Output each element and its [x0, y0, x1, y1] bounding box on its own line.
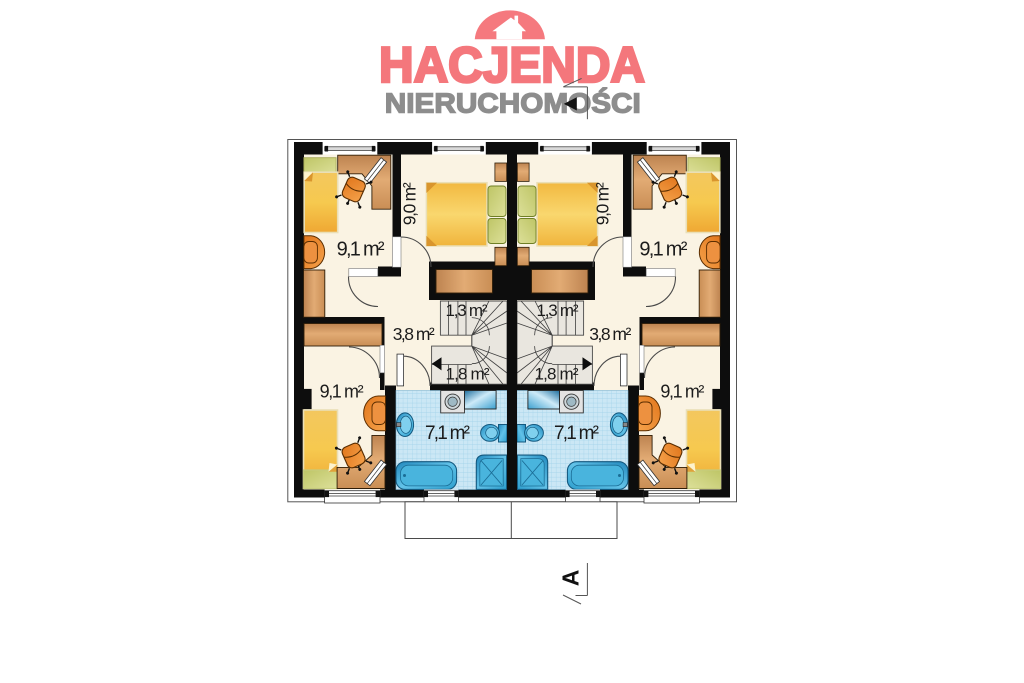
svg-text:3,8 m²: 3,8 m²: [393, 324, 435, 344]
svg-text:1,3 m²: 1,3 m²: [446, 301, 488, 320]
svg-text:9,1 m²: 9,1 m²: [337, 239, 385, 261]
svg-text:9,1 m²: 9,1 m²: [639, 239, 687, 261]
svg-text:3,8 m²: 3,8 m²: [589, 324, 631, 344]
svg-text:9,1 m²: 9,1 m²: [320, 382, 364, 402]
svg-text:A: A: [557, 570, 583, 587]
svg-text:1,8 m²: 1,8 m²: [535, 365, 579, 384]
svg-text:9,0 m²: 9,0 m²: [400, 182, 420, 225]
svg-text:1,3 m²: 1,3 m²: [537, 301, 579, 320]
svg-text:9,1 m²: 9,1 m²: [660, 382, 704, 402]
svg-text:HACJENDA: HACJENDA: [379, 37, 645, 93]
svg-text:7,1 m²: 7,1 m²: [425, 423, 470, 444]
svg-text:1,8 m²: 1,8 m²: [446, 365, 490, 384]
svg-text:9,0 m²: 9,0 m²: [593, 182, 613, 225]
svg-text:7,1 m²: 7,1 m²: [554, 423, 599, 444]
svg-text:NIERUCHOMOŚCI: NIERUCHOMOŚCI: [385, 88, 641, 119]
